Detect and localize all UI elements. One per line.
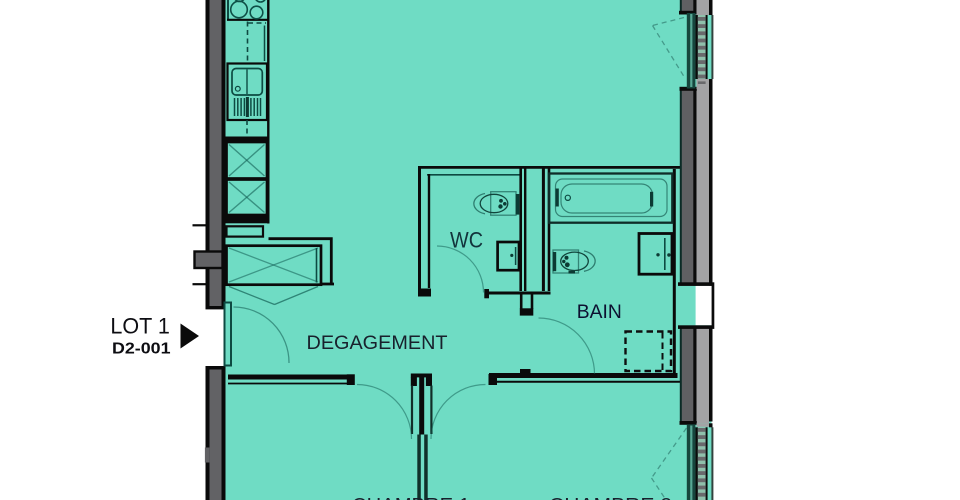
svg-text:LOT 1: LOT 1	[110, 313, 169, 338]
svg-text:WC: WC	[450, 228, 483, 253]
svg-text:CHAMBRE 1: CHAMBRE 1	[352, 495, 470, 500]
svg-text:D2-001: D2-001	[112, 341, 171, 358]
svg-text:DEGAGEMENT: DEGAGEMENT	[307, 332, 448, 354]
svg-text:BAIN: BAIN	[577, 302, 622, 323]
svg-text:CHAMBRE 2: CHAMBRE 2	[549, 495, 672, 500]
